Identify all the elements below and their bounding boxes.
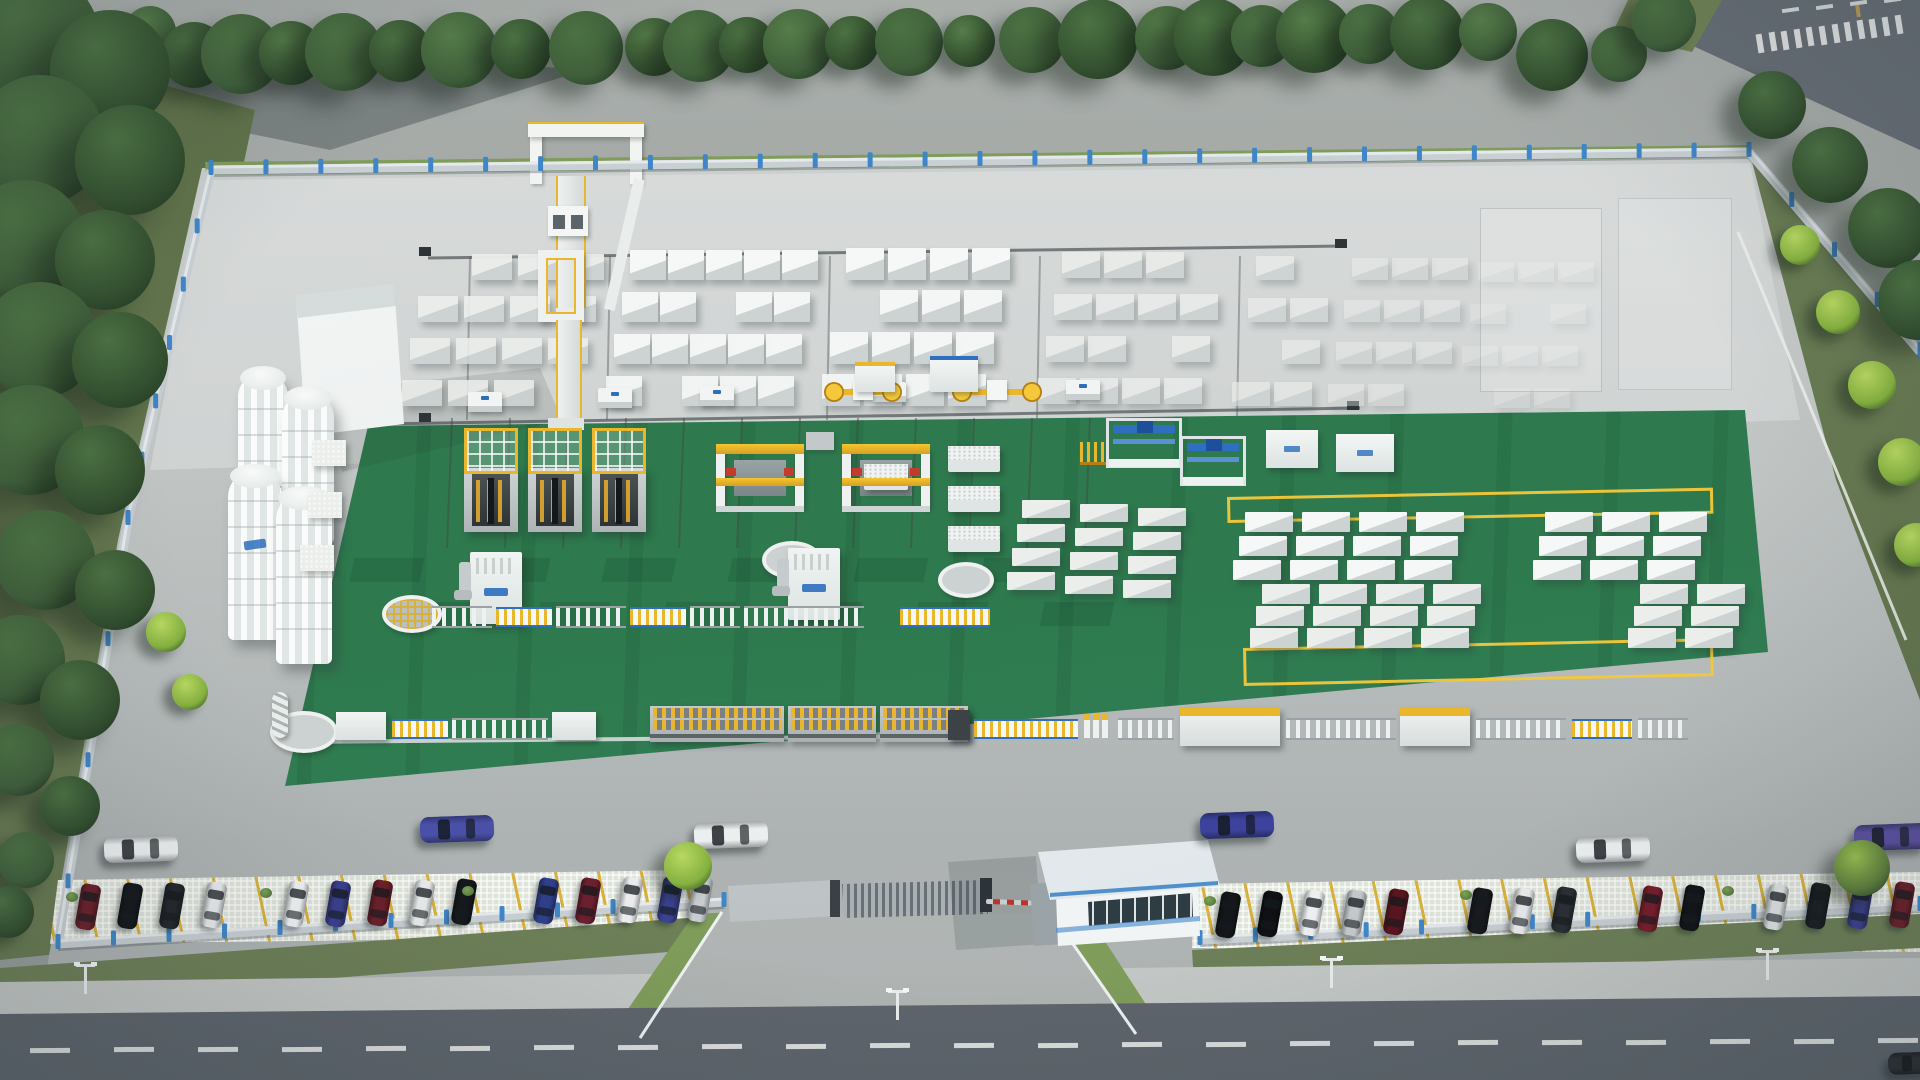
tree-parking-right — [1834, 840, 1890, 896]
tree — [1738, 71, 1806, 139]
tree — [1878, 260, 1920, 340]
tree-bright — [1894, 523, 1920, 567]
tree-bright — [1848, 361, 1896, 409]
tree-gate — [664, 842, 712, 890]
tree — [1848, 188, 1920, 268]
tree-bright — [1780, 225, 1820, 265]
tree-bright — [1816, 290, 1860, 334]
tree-corner — [1632, 0, 1696, 52]
factory-aerial-scene — [0, 0, 1920, 1080]
tree-band-right — [0, 0, 1920, 1080]
tree-bright — [1878, 438, 1920, 486]
tree — [1792, 127, 1868, 203]
